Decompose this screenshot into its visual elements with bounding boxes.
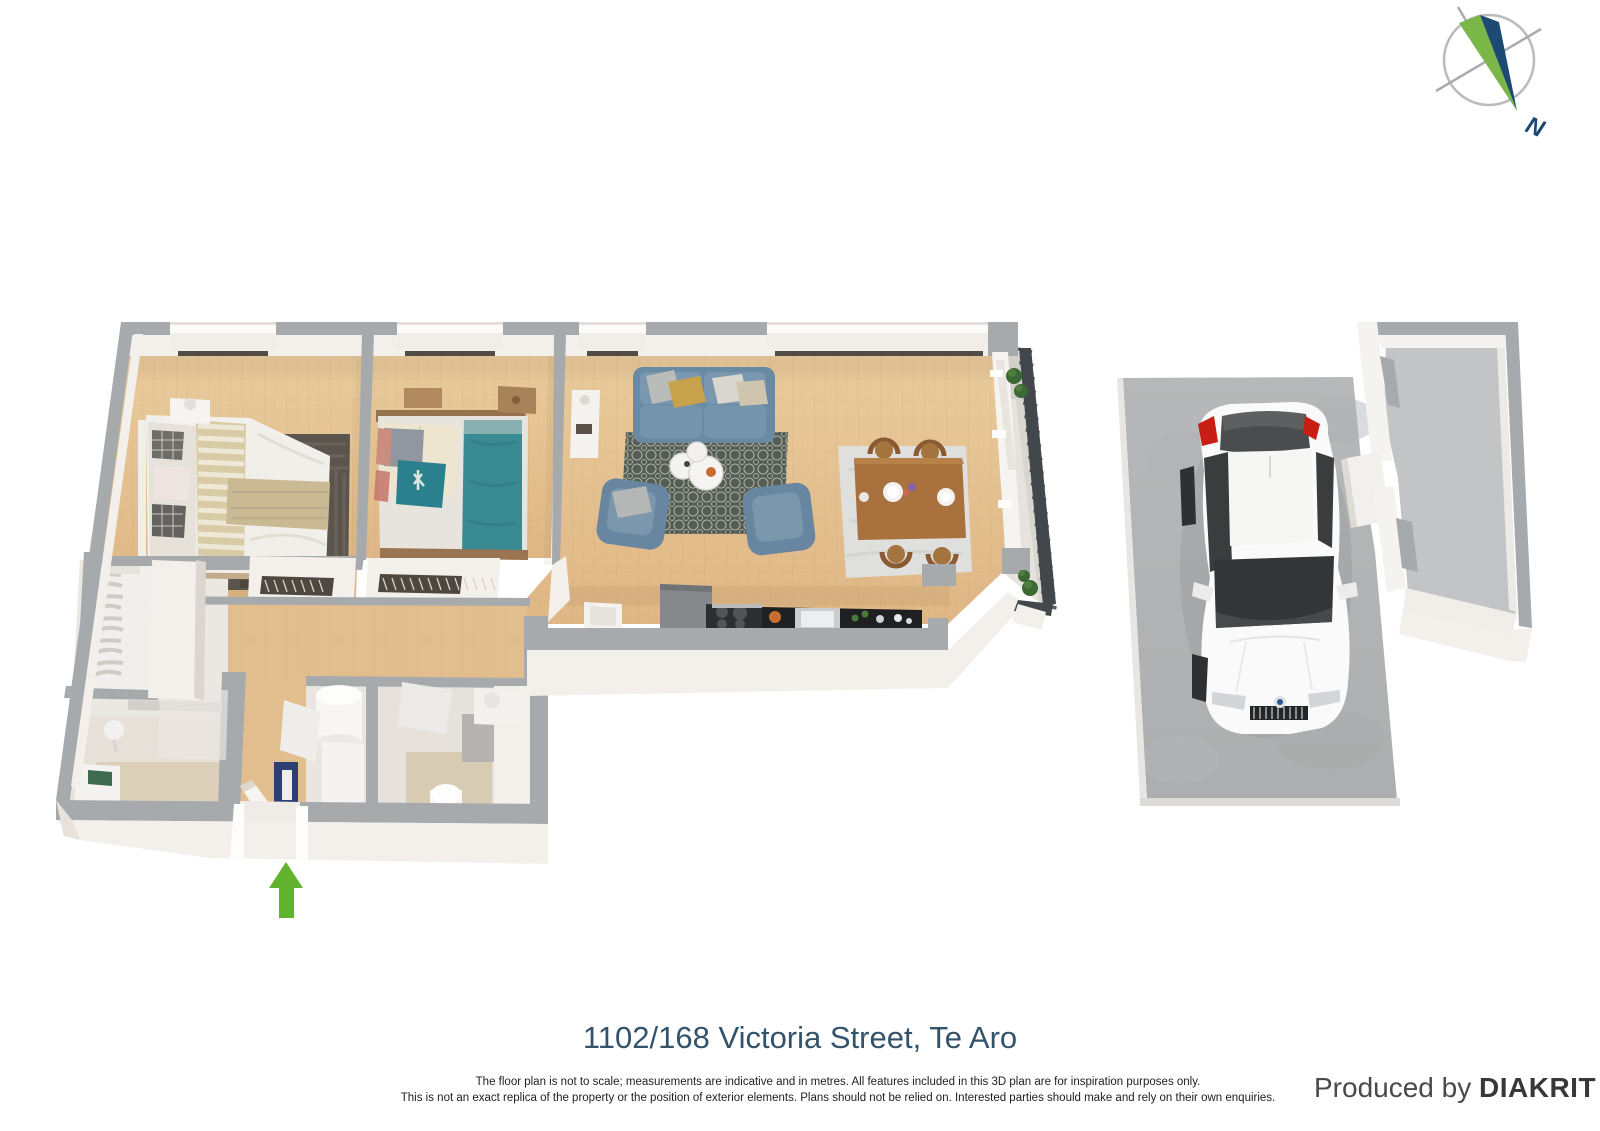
svg-text:Produced by DIAKRIT: Produced by DIAKRIT — [1314, 1072, 1596, 1103]
svg-text:1102/168 Victoria Street, Te A: 1102/168 Victoria Street, Te Aro — [583, 1020, 1017, 1055]
svg-text:This is not an exact replica o: This is not an exact replica of the prop… — [401, 1092, 1276, 1104]
svg-text:The floor plan is not to scale: The floor plan is not to scale; measurem… — [476, 1076, 1201, 1088]
